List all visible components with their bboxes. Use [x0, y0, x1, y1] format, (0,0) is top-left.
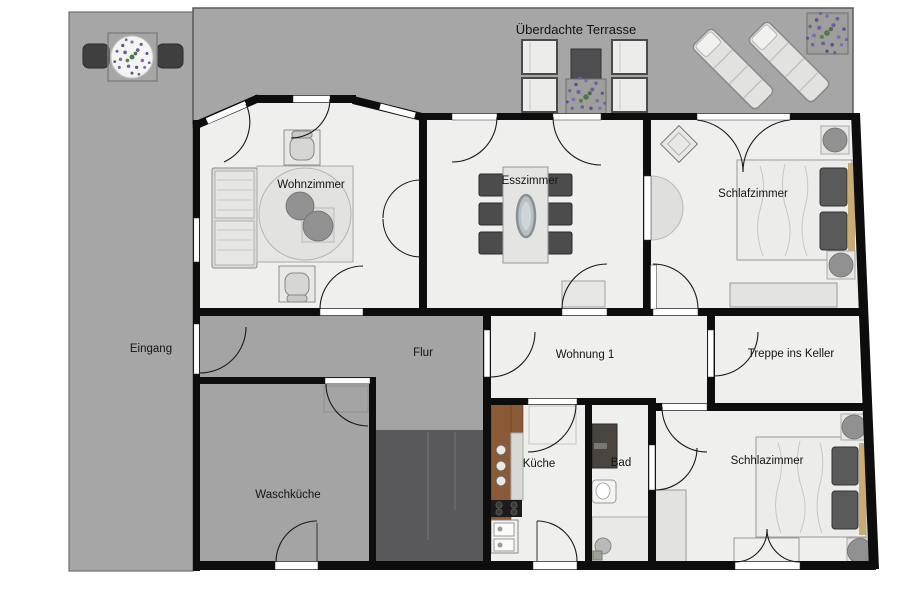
entrance-walkway	[69, 12, 193, 571]
dresser	[730, 283, 837, 307]
door-gap	[528, 399, 577, 405]
double-bed	[756, 437, 866, 537]
sink-knob	[496, 461, 506, 471]
apartment-label: Wohnung 1	[556, 349, 615, 361]
terrace-dining-set	[522, 40, 647, 117]
nightstand-top	[829, 253, 853, 277]
door-leaf	[651, 265, 657, 309]
bench	[83, 44, 109, 68]
terrace-chair	[612, 40, 647, 74]
terrace-chair	[612, 78, 647, 112]
window	[194, 218, 200, 262]
kitchen-label: Küche	[523, 458, 556, 470]
door-gap	[320, 309, 363, 316]
stairs-basement-label: Treppe ins Keller	[748, 348, 835, 360]
entrance-label: Eingang	[130, 343, 172, 355]
terrace-door	[697, 114, 790, 121]
living-room-label: Wohnzimmer	[277, 179, 345, 191]
door-gap	[562, 309, 607, 316]
terrace-door	[452, 114, 497, 121]
door-gap	[325, 378, 370, 384]
door-gap	[533, 562, 577, 570]
sink-basin	[494, 539, 514, 551]
pillow	[832, 491, 858, 529]
double-bed	[737, 160, 855, 260]
sink-basin	[494, 523, 514, 536]
pillow	[820, 168, 847, 206]
bathroom-label: Bad	[611, 457, 631, 469]
vanity-sink	[594, 443, 607, 449]
pouf	[303, 211, 333, 241]
window	[293, 96, 330, 103]
wardrobe	[655, 490, 686, 563]
nightstand-top	[823, 128, 847, 152]
sink-knob	[496, 445, 506, 455]
laundry-floor	[197, 381, 372, 567]
dining-chair	[479, 203, 504, 225]
door-gap	[708, 330, 714, 377]
pillow	[820, 212, 847, 250]
terrace-door	[553, 114, 601, 121]
dining-room-label: Esszimmer	[502, 175, 559, 187]
stairs-room-floor	[711, 314, 861, 406]
serving-plate-inner	[521, 202, 531, 230]
armchair	[284, 130, 320, 165]
door-gap	[275, 562, 318, 570]
sofa-cushion	[215, 171, 254, 218]
counter-top	[511, 433, 523, 500]
terrace-chair	[522, 40, 557, 74]
door-gap	[649, 445, 655, 490]
dining-chair	[479, 174, 504, 196]
terrace-label: Überdachte Terrasse	[516, 22, 636, 37]
hallway-label: Flur	[413, 347, 433, 359]
sofa-cushion	[215, 221, 254, 265]
door-gap	[653, 309, 698, 316]
pillow	[832, 447, 858, 485]
dining-chair	[479, 232, 504, 254]
toilet-bowl	[596, 483, 610, 499]
dining-chair	[547, 203, 572, 225]
french-door	[735, 562, 800, 570]
nightstand-top	[842, 415, 866, 439]
terrace-chair	[522, 78, 557, 112]
door-gap	[484, 330, 490, 377]
armchair	[279, 266, 315, 302]
bedroom-bottom-label: Schhlazimmer	[731, 455, 804, 467]
laundry-label: Waschküche	[255, 489, 320, 501]
stove	[491, 500, 522, 517]
bedroom-top-label: Schlafzimmer	[718, 188, 788, 200]
shower-fixture	[593, 551, 602, 560]
door-gap	[662, 404, 707, 411]
terrace-table	[571, 49, 601, 79]
entrance-door	[194, 324, 200, 374]
dining-chair	[547, 232, 572, 254]
floor-plan: Überdachte Terrasse Wohnzimmer Esszimmer…	[0, 0, 900, 590]
window	[644, 176, 651, 240]
bench	[157, 44, 183, 68]
sink-knob	[496, 476, 506, 486]
